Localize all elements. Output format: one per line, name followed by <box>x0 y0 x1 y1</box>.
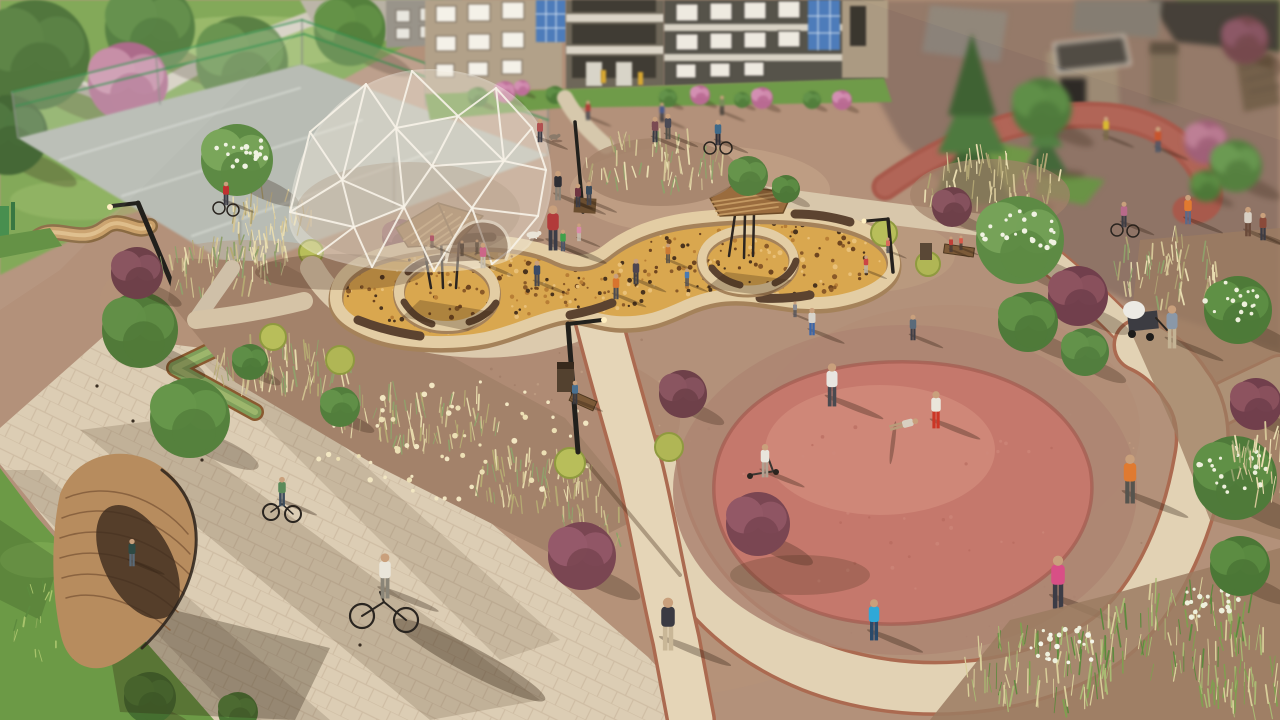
park-render-stage <box>0 0 1280 720</box>
lamp-head <box>601 317 607 323</box>
litter-bin-top <box>557 362 574 369</box>
litter-bin <box>557 366 574 392</box>
glazed-stair-tower <box>808 0 840 50</box>
circle-highlight <box>765 385 995 515</box>
topiary-ball <box>871 220 897 246</box>
lamp-head <box>862 219 867 224</box>
building-left-windows <box>436 2 524 77</box>
building-mid-glazing <box>572 0 656 78</box>
litter-bin <box>920 243 932 260</box>
stroller-hood <box>1123 301 1145 319</box>
lamp-arm <box>866 219 888 221</box>
topiary-ball <box>326 346 354 374</box>
topiary-ball <box>655 433 683 461</box>
building-end-window <box>850 6 866 46</box>
park-aerial-render <box>0 0 1280 720</box>
topiary-ball <box>260 324 286 350</box>
topiary-ball <box>555 448 585 478</box>
glazed-stair-tower <box>536 0 566 42</box>
